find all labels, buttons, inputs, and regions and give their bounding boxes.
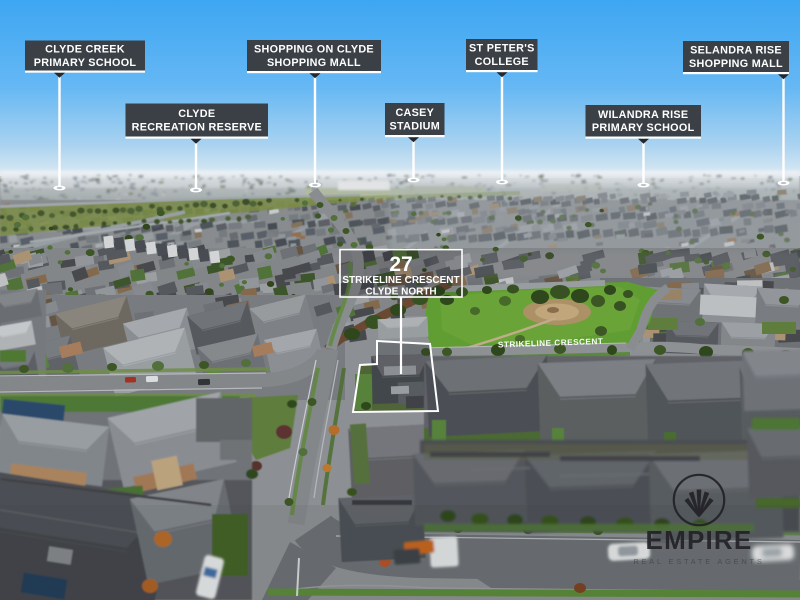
svg-text:27: 27 [389, 253, 412, 276]
svg-text:SHOPPING ON CLYDE: SHOPPING ON CLYDE [254, 44, 374, 56]
svg-text:WILANDRA RISE: WILANDRA RISE [598, 109, 688, 121]
svg-text:ST PETER'S: ST PETER'S [469, 43, 535, 55]
svg-text:STADIUM: STADIUM [390, 121, 440, 133]
svg-text:PRIMARY SCHOOL: PRIMARY SCHOOL [34, 57, 137, 69]
svg-text:CLYDE CREEK: CLYDE CREEK [45, 44, 125, 56]
svg-text:SELANDRA RISE: SELANDRA RISE [690, 45, 782, 57]
svg-text:RECREATION RESERVE: RECREATION RESERVE [132, 122, 262, 134]
svg-text:CLYDE NORTH: CLYDE NORTH [365, 287, 436, 298]
svg-text:SHOPPING MALL: SHOPPING MALL [689, 58, 783, 70]
svg-text:REAL ESTATE AGENTS: REAL ESTATE AGENTS [633, 557, 764, 566]
svg-text:COLLEGE: COLLEGE [475, 56, 529, 68]
svg-text:CASEY: CASEY [395, 107, 434, 119]
svg-text:CLYDE: CLYDE [178, 108, 215, 120]
svg-text:PRIMARY SCHOOL: PRIMARY SCHOOL [592, 122, 695, 134]
svg-text:SHOPPING MALL: SHOPPING MALL [267, 57, 361, 69]
svg-text:STRIKELINE CRESCENT: STRIKELINE CRESCENT [342, 275, 459, 286]
svg-text:EMPIRE: EMPIRE [646, 525, 753, 555]
